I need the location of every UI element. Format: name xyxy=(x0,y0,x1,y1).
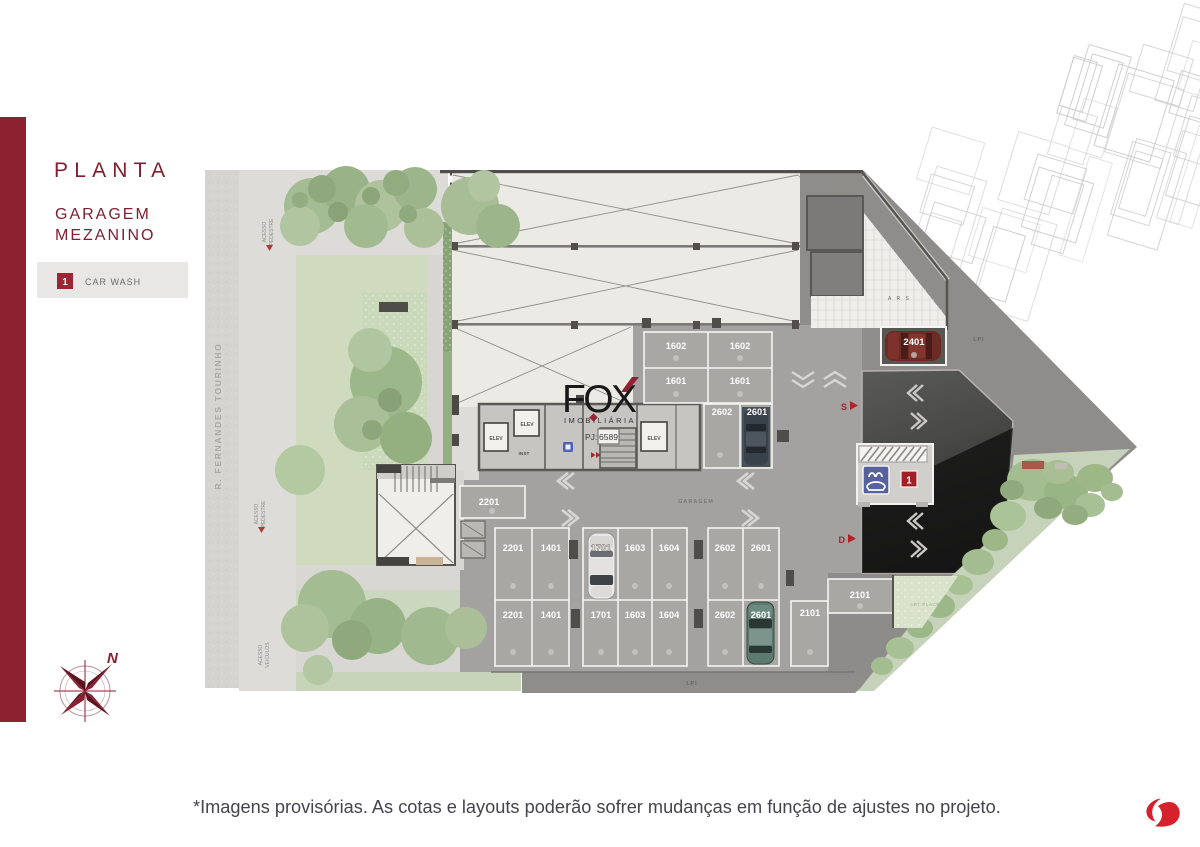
svg-text:6589: 6589 xyxy=(599,432,618,442)
svg-text:1602: 1602 xyxy=(730,341,750,351)
svg-text:1401: 1401 xyxy=(541,610,561,620)
svg-text:2401: 2401 xyxy=(903,337,925,348)
svg-text:2201: 2201 xyxy=(503,543,523,553)
svg-text:R. FERNANDES TOURINHO: R. FERNANDES TOURINHO xyxy=(213,343,223,490)
svg-text:1: 1 xyxy=(62,277,68,288)
svg-text:1603: 1603 xyxy=(625,543,645,553)
svg-text:2601: 2601 xyxy=(751,610,771,620)
svg-text:S: S xyxy=(841,402,847,412)
svg-text:*Imagens provisórias. As cotas: *Imagens provisórias. As cotas e layouts… xyxy=(193,797,1001,817)
svg-text:ELEV: ELEV xyxy=(520,422,534,428)
svg-text:2602: 2602 xyxy=(712,407,732,417)
svg-text:2101: 2101 xyxy=(800,608,820,618)
svg-text:IMOBILIÁRIA: IMOBILIÁRIA xyxy=(564,416,635,425)
svg-text:1601: 1601 xyxy=(666,376,686,386)
svg-text:1603: 1603 xyxy=(625,610,645,620)
svg-text:1601: 1601 xyxy=(730,376,750,386)
svg-text:1401: 1401 xyxy=(541,543,561,553)
svg-text:1: 1 xyxy=(906,476,912,487)
svg-text:ACESSO: ACESSO xyxy=(262,221,268,242)
svg-text:MEZANINO: MEZANINO xyxy=(55,227,155,244)
svg-text:ART PLACE: ART PLACE xyxy=(910,602,940,607)
svg-text:PJ:: PJ: xyxy=(585,432,597,442)
svg-text:1604: 1604 xyxy=(659,610,680,620)
svg-text:VEICULOS: VEICULOS xyxy=(265,642,271,668)
svg-text:ELEV: ELEV xyxy=(647,436,661,442)
svg-text:1604: 1604 xyxy=(659,543,680,553)
svg-text:2602: 2602 xyxy=(715,543,735,553)
svg-text:1701: 1701 xyxy=(591,610,611,620)
svg-text:PEDESTRE: PEDESTRE xyxy=(269,218,275,246)
svg-text:ACESSO: ACESSO xyxy=(254,503,260,524)
svg-text:1701: 1701 xyxy=(591,543,611,553)
svg-text:A R S: A R S xyxy=(888,296,911,302)
svg-text:2201: 2201 xyxy=(479,497,499,507)
svg-text:1602: 1602 xyxy=(666,341,686,351)
svg-text:LPI: LPI xyxy=(973,337,984,343)
svg-text:GARAGEM: GARAGEM xyxy=(678,499,714,505)
svg-text:INST: INST xyxy=(519,451,530,457)
svg-text:2601: 2601 xyxy=(751,543,771,553)
svg-text:2201: 2201 xyxy=(503,610,523,620)
svg-text:N: N xyxy=(107,650,119,667)
svg-text:D: D xyxy=(839,535,846,545)
svg-text:2601: 2601 xyxy=(747,407,767,417)
svg-text:PEDESTRE: PEDESTRE xyxy=(261,500,267,528)
svg-text:2602: 2602 xyxy=(715,610,735,620)
svg-text:2101: 2101 xyxy=(850,590,870,600)
svg-text:PLANTA: PLANTA xyxy=(54,159,171,182)
svg-text:ELEV: ELEV xyxy=(489,436,503,442)
svg-text:ACESSO: ACESSO xyxy=(258,644,264,665)
svg-text:LPI: LPI xyxy=(686,681,697,687)
svg-text:CAR WASH: CAR WASH xyxy=(85,277,141,287)
svg-text:GARAGEM: GARAGEM xyxy=(55,206,151,223)
